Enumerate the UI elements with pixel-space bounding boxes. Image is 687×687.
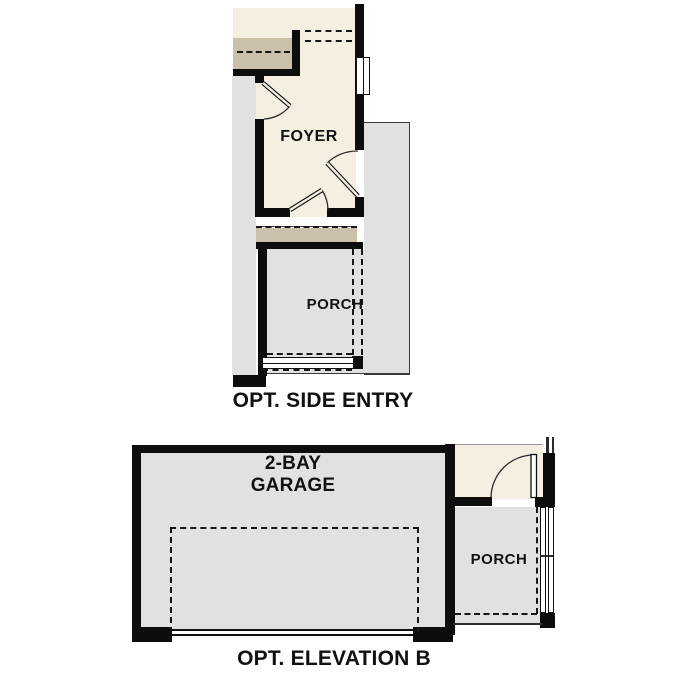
wall-left-foot bbox=[233, 375, 266, 387]
wall-foyer-bottom-right bbox=[327, 208, 364, 217]
foyer-window-icon bbox=[356, 57, 370, 95]
garage-door-dashed-outline bbox=[170, 527, 419, 633]
porch-room-label: PORCH bbox=[285, 297, 385, 314]
porch-steps bbox=[262, 357, 354, 369]
cased-opening-dash-1 bbox=[305, 30, 352, 32]
cased-opening-dash-2 bbox=[305, 40, 352, 42]
wall-porch-top bbox=[256, 242, 363, 249]
porch-b-post bbox=[540, 613, 555, 628]
wall-garage-left bbox=[132, 445, 141, 628]
porch-step-edge bbox=[263, 363, 353, 364]
wall-left-upper bbox=[255, 75, 264, 83]
porch-b-room-label: PORCH bbox=[449, 552, 549, 569]
stair-dashed-line bbox=[237, 51, 290, 53]
garage-label-line2: GARAGE bbox=[218, 476, 368, 497]
porch-roofline-dash-3 bbox=[267, 353, 352, 355]
floorplan-sheet: FOYER PORCH OPT. SIDE ENTRY bbox=[0, 0, 687, 687]
wall-garage-right bbox=[445, 444, 455, 635]
stair-landing-bottom bbox=[256, 228, 357, 242]
foyer-window-mullion bbox=[363, 58, 364, 94]
plan-elevation-b: 2-BAY GARAGE PORCH OPT. ELEVATION B bbox=[0, 420, 687, 687]
foyer-room-label: FOYER bbox=[259, 128, 359, 146]
porch-b-bottom-edge bbox=[453, 623, 543, 625]
stair-landing-top bbox=[233, 38, 293, 70]
wall-stoop-bottom bbox=[233, 69, 300, 76]
porch-b-dash-horiz bbox=[455, 613, 537, 615]
plan-side-entry: FOYER PORCH OPT. SIDE ENTRY bbox=[0, 0, 687, 420]
wall-entry-right bbox=[543, 453, 555, 507]
wall-foyer-bottom-left bbox=[255, 208, 290, 217]
wall-garage-foot-left bbox=[132, 627, 172, 642]
garage-label-line1: 2-BAY bbox=[218, 454, 368, 475]
garage-door-icon bbox=[172, 629, 413, 636]
elevation-b-title: OPT. ELEVATION B bbox=[184, 647, 484, 670]
wall-entry-bottom bbox=[450, 497, 492, 506]
entry-window-tick-2 bbox=[552, 437, 555, 453]
entry-floor bbox=[455, 444, 543, 499]
porch-steps-dash bbox=[262, 369, 352, 371]
side-entry-title: OPT. SIDE ENTRY bbox=[183, 389, 463, 412]
wall-garage-top bbox=[132, 445, 455, 453]
entry-window-tick-1 bbox=[546, 437, 549, 453]
left-walkway-floor bbox=[232, 76, 256, 376]
